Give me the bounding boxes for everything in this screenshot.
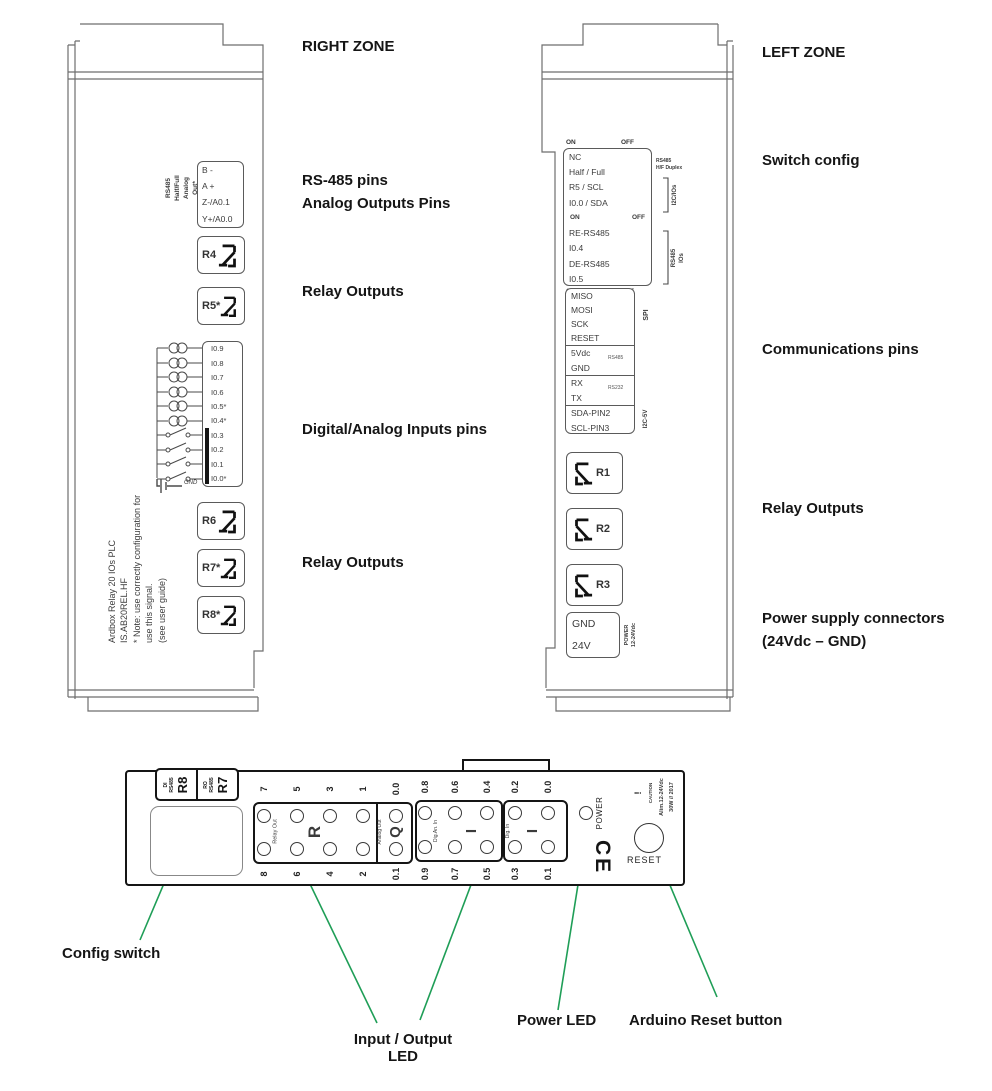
annotation-relay-outputs-top: Relay Outputs: [302, 283, 404, 300]
relay-contact-icon: [571, 515, 593, 543]
rs485-analog-terminal: B - A + Z-/A0.1 Y+/A0.0: [197, 161, 244, 228]
analog-letter: Q: [386, 822, 406, 842]
rs485-tag: RS485: [608, 355, 623, 361]
pin-label: TX: [566, 391, 634, 405]
pin-label: I0.9: [211, 345, 242, 353]
led-circle: [541, 840, 555, 854]
label-line: Half/Full: [173, 158, 182, 218]
pin-label: SCK: [566, 317, 634, 331]
label-line: POWER: [624, 612, 631, 658]
caution-rating-line1: Alim.12-24Vdc: [659, 770, 667, 824]
annotation-power-line1: Power supply connectors: [762, 610, 945, 627]
i2c-label: I2C-5V: [643, 399, 653, 439]
led-number: 7: [259, 778, 269, 800]
relay-r6: R6: [197, 502, 245, 540]
caution-title: CAUTION: [648, 775, 656, 811]
relay-label: R8*: [202, 609, 220, 621]
relay-label: R5*: [202, 300, 220, 312]
side-text-line: (see user guide): [156, 409, 168, 643]
label-line: Analog: [182, 158, 191, 218]
switch-onoff-row: ON OFF: [564, 210, 651, 225]
relay-contact-icon: [218, 507, 240, 535]
annotation-rs485-pins: RS-485 pins: [302, 172, 388, 189]
led-circle: [418, 840, 432, 854]
callout-io-line2: LED: [333, 1048, 473, 1065]
callout-config-switch: Config switch: [62, 945, 160, 962]
led-number: 0.7: [450, 863, 460, 885]
relay-contact-icon: [220, 554, 240, 582]
led-number: 5: [292, 778, 302, 800]
led-number: 0.8: [420, 776, 430, 798]
label-line: 12-24Vdc: [631, 612, 638, 658]
annotation-analog-outputs: Analog Outputs Pins: [302, 195, 450, 212]
led-circle: [323, 809, 337, 823]
digan-letter: I: [462, 821, 482, 841]
led-circle: [257, 842, 271, 856]
relay-r1: R1: [566, 452, 623, 494]
rs485-ios-label: RS485 IOs: [670, 236, 690, 280]
pin-label: RX: [566, 376, 634, 391]
communications-block: MISO MOSI SCK RESET 5Vdc GND RS485 RX TX…: [565, 288, 635, 434]
pin-label: SCL-PIN3: [566, 421, 634, 435]
rs232-tag: RS232: [608, 385, 623, 391]
led-circle: [389, 842, 403, 856]
switch-row: DE-RS485: [564, 256, 651, 271]
config-switch-box: [150, 806, 243, 876]
annotation-communications: Communications pins: [762, 341, 919, 358]
relay-r4: R4: [197, 236, 245, 274]
led-number: 1: [358, 778, 368, 800]
spi-section: MISO MOSI SCK RESET: [566, 289, 634, 345]
led-circle: [356, 842, 370, 856]
label-line: RS485: [670, 236, 678, 280]
relay-contact-icon: [218, 241, 240, 269]
led-circle: [356, 809, 370, 823]
annotation-relay-outputs: Relay Outputs: [762, 500, 864, 517]
led-circle: [541, 806, 555, 820]
switch-row: R5 / SCL: [564, 180, 651, 195]
led-number: 8: [259, 863, 269, 885]
led-circle: [480, 806, 494, 820]
led-number: 0.3: [510, 863, 520, 885]
pin-label: Y+/A0.0: [202, 215, 243, 224]
callout-io-line1: Input / Output: [333, 1031, 473, 1048]
pin-label: I0.6: [211, 389, 242, 397]
led-number: 0.1: [543, 863, 553, 885]
caution-exclamation: !: [633, 787, 643, 799]
side-text-line: IS.AB20REL.HF: [118, 409, 130, 643]
rs485-analog-rotated-label: RS485 Half/Full Analog Out*: [164, 158, 200, 218]
label-line: IOs: [678, 236, 686, 280]
led-circle: [508, 840, 522, 854]
led-circle: [480, 840, 494, 854]
pin-label: I0.5*: [211, 403, 242, 411]
relay-r7: R7*: [197, 549, 245, 587]
pin-label: RESET: [566, 331, 634, 345]
gnd-label: GND: [184, 480, 197, 486]
annotation-switch-config: Switch config: [762, 152, 860, 169]
product-side-text: Ardbox Relay 20 IOs PLC IS.AB20REL.HF * …: [106, 409, 168, 643]
switch-row: I0.5: [564, 271, 651, 286]
switch-row: Half / Full: [564, 164, 651, 179]
r8-label: R8: [175, 777, 190, 794]
pin-label: I0.1: [211, 461, 242, 469]
side-text-line: * Note: use correctly configuration for: [131, 409, 143, 643]
analog-out-label: Analog Out: [377, 807, 385, 857]
switch-on-label: ON: [570, 214, 580, 221]
led-number: 6: [292, 863, 302, 885]
led-number: 0.5: [482, 863, 492, 885]
di-rs485-r8-cell: DI RS485 R8: [157, 770, 196, 799]
group-brackets: [663, 178, 668, 284]
digan-label: Dig.An. In: [433, 806, 441, 856]
spi-label: SPI: [643, 295, 653, 335]
label-line: RS485: [164, 158, 173, 218]
switch-off-label: OFF: [621, 139, 634, 146]
side-text-line: use this signal.: [143, 409, 155, 643]
relay-letter: R: [305, 822, 325, 842]
led-circle: [323, 842, 337, 856]
power-terminal: GND 24V: [566, 612, 620, 658]
pin-label: I0.4*: [211, 417, 242, 425]
switch-row: NC: [564, 149, 651, 164]
relay-label: R2: [596, 523, 610, 535]
switch-off-label: OFF: [632, 214, 645, 221]
switch-on-label: ON: [566, 139, 576, 146]
relay-label: R4: [202, 249, 216, 261]
reset-button: [634, 823, 664, 853]
pin-label: GND: [566, 361, 634, 375]
reset-label: RESET: [627, 855, 662, 865]
power-led: [579, 806, 593, 820]
led-circle: [508, 806, 522, 820]
led-circle: [389, 809, 403, 823]
pin-label: GND: [572, 619, 619, 630]
i2c-ios-label: I2C/IOs: [672, 175, 682, 215]
switch-row: I0.0 / SDA: [564, 195, 651, 210]
ce-mark: CE: [589, 840, 615, 872]
led-number: 0.6: [450, 776, 460, 798]
pin-label: Z-/A0.1: [202, 198, 243, 207]
relay-r2: R2: [566, 508, 623, 550]
diagram-canvas: RS485 Half/Full Analog Out* B - A + Z-/A…: [0, 0, 992, 1091]
power-led-label: POWER: [595, 791, 605, 835]
relay-label: R3: [596, 579, 610, 591]
i2c-section: SDA-PIN2 SCL-PIN3: [566, 405, 634, 435]
led-circle: [418, 806, 432, 820]
switch-row: I0.4: [564, 241, 651, 256]
led-number: 0.0: [543, 776, 553, 798]
r7-label: R7: [215, 777, 230, 794]
pin-label: 24V: [572, 641, 619, 652]
rs485-section: 5Vdc GND RS485: [566, 345, 634, 375]
led-number: 0.9: [420, 863, 430, 885]
led-number: 0.1: [391, 863, 401, 885]
rs485-duplex-label: RS485 H/F Duplex: [656, 158, 702, 171]
pin-label: SDA-PIN2: [566, 406, 634, 421]
relay-contact-icon: [571, 571, 593, 599]
led-number: 4: [325, 863, 335, 885]
led-circle: [290, 842, 304, 856]
side-text-line: Ardbox Relay 20 IOs PLC: [106, 409, 118, 643]
pin-label: MISO: [566, 289, 634, 303]
pin-label: B -: [202, 166, 243, 175]
led-circle: [448, 806, 462, 820]
relay-label: R1: [596, 467, 610, 479]
switch-row: RE-RS485: [564, 225, 651, 240]
relay-contact-icon: [220, 601, 240, 629]
pin-label: I0.3: [211, 432, 242, 440]
pin-label: I0.8: [211, 360, 242, 368]
left-zone-title: LEFT ZONE: [762, 44, 845, 61]
pin-label: 5Vdc: [566, 346, 634, 361]
dig-letter: I: [523, 821, 543, 841]
led-circle: [257, 809, 271, 823]
pin-label: A +: [202, 182, 243, 191]
input-terminal: I0.9 I0.8 I0.7 I0.6 I0.5* I0.4* I0.3 I0.…: [202, 341, 243, 487]
callout-power-led: Power LED: [517, 1012, 596, 1029]
relay-contact-icon: [571, 459, 593, 487]
relay-out-label: Relay Out: [273, 804, 282, 860]
callout-reset-button: Arduino Reset button: [629, 1012, 782, 1029]
led-number: 0.4: [482, 776, 492, 798]
input-config-bar: [205, 428, 209, 484]
rs232-section: RX TX RS232: [566, 375, 634, 405]
led-number: 0.0: [391, 778, 401, 800]
power-rating-label: POWER 12-24Vdc: [624, 612, 642, 658]
led-number: 0.2: [510, 776, 520, 798]
relay-r8: R8*: [197, 596, 245, 634]
di-ro-block: DI RS485 R8 RO RS485 R7: [155, 768, 239, 801]
annotation-power-line2: (24Vdc – GND): [762, 633, 866, 650]
label-line: H/F Duplex: [656, 165, 702, 172]
pin-label: MOSI: [566, 303, 634, 317]
annotation-relay-outputs-bottom: Relay Outputs: [302, 554, 404, 571]
relay-label: R7*: [202, 562, 220, 574]
switch-config-block: NC Half / Full R5 / SCL I0.0 / SDA ON OF…: [563, 148, 652, 286]
led-number: 3: [325, 778, 335, 800]
caution-rating-line2: 30W // 2017: [669, 770, 677, 824]
callout-io-led: Input / Output LED: [333, 1031, 473, 1065]
relay-r5: R5*: [197, 287, 245, 325]
led-number: 2: [358, 863, 368, 885]
right-zone-title: RIGHT ZONE: [302, 38, 395, 55]
pin-label: I0.0*: [211, 475, 242, 483]
relay-label: R6: [202, 515, 216, 527]
relay-contact-icon: [220, 292, 240, 320]
pin-label: I0.7: [211, 374, 242, 382]
relay-r3: R3: [566, 564, 623, 606]
led-circle: [290, 809, 304, 823]
pin-label: I0.2: [211, 446, 242, 454]
annotation-inputs: Digital/Analog Inputs pins: [302, 421, 487, 438]
led-circle: [448, 840, 462, 854]
ro-rs485-r7-cell: RO RS485 R7: [196, 770, 237, 799]
